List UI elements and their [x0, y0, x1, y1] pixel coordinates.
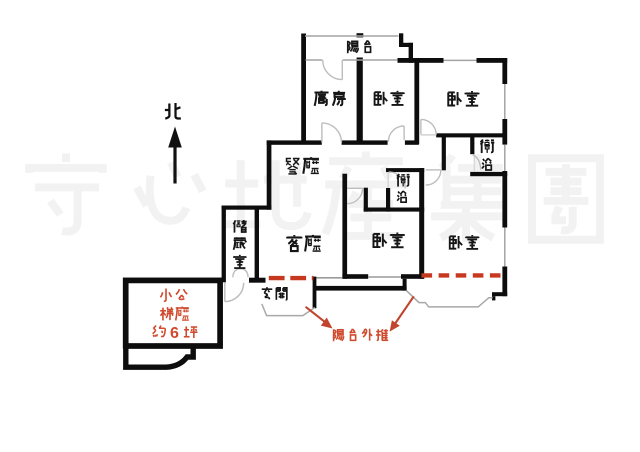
svg-text:6: 6 — [170, 325, 179, 342]
